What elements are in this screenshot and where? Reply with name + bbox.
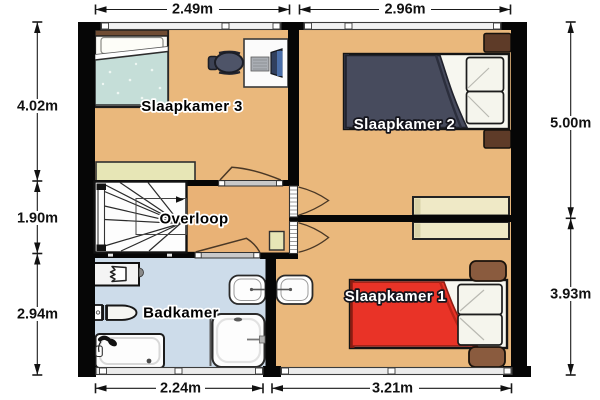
svg-text:4.02m: 4.02m [17, 99, 58, 115]
svg-text:5.00m: 5.00m [550, 116, 591, 132]
svg-text:1.90m: 1.90m [17, 211, 58, 227]
svg-text:2.49m: 2.49m [172, 2, 213, 18]
svg-text:2.24m: 2.24m [160, 380, 201, 396]
svg-text:3.21m: 3.21m [372, 380, 413, 396]
svg-text:Badkamer: Badkamer [143, 305, 219, 322]
svg-text:3.93m: 3.93m [550, 287, 591, 303]
svg-text:Slaapkamer 3: Slaapkamer 3 [141, 98, 243, 115]
svg-text:Slaapkamer 2: Slaapkamer 2 [354, 116, 456, 133]
svg-text:Overloop: Overloop [159, 211, 228, 228]
svg-text:Slaapkamer 1: Slaapkamer 1 [345, 288, 447, 305]
svg-text:2.94m: 2.94m [17, 307, 58, 323]
svg-text:2.96m: 2.96m [384, 2, 425, 18]
